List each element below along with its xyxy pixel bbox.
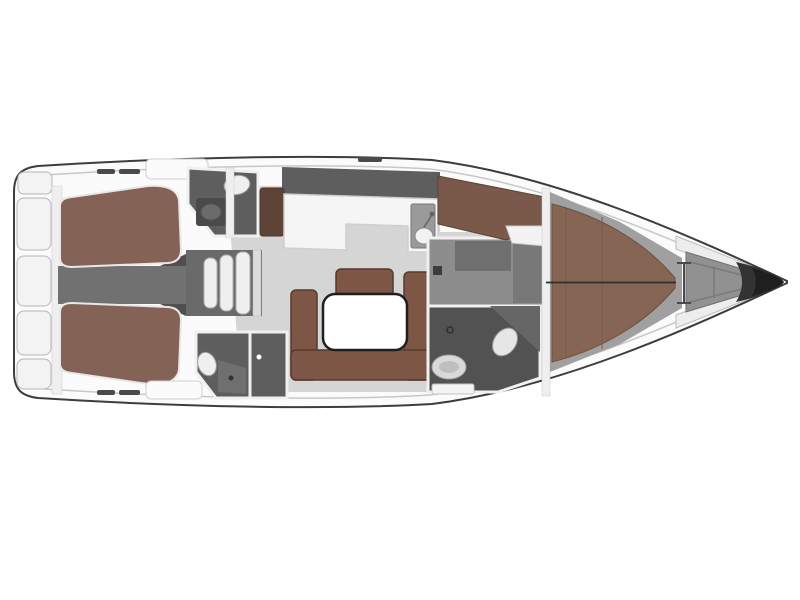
deck-hatch — [119, 169, 140, 174]
head-door — [432, 384, 474, 394]
latch — [433, 266, 442, 275]
deck-hatch — [119, 390, 140, 395]
stair-step — [236, 252, 250, 314]
forward-bulkhead — [542, 188, 550, 396]
floorplan-svg — [0, 0, 800, 600]
salon-table — [323, 294, 407, 350]
transom-seat — [17, 198, 51, 250]
deck-hatch — [97, 390, 115, 395]
door-knob — [257, 355, 262, 360]
bow-anchor-locker — [676, 236, 784, 328]
shower-drain — [229, 376, 234, 381]
head-aft-port — [188, 168, 258, 236]
deck-hatch — [97, 169, 115, 174]
sink-bowl — [439, 361, 459, 373]
engine-corridor — [58, 266, 186, 304]
stair-step — [220, 255, 233, 311]
sofa-bottom-bench — [291, 350, 435, 380]
aft-cabin-starboard-berth — [60, 303, 181, 384]
side-shelf — [506, 226, 545, 246]
stair-step — [204, 258, 217, 308]
stair-rail — [253, 250, 261, 316]
deck-hatch — [358, 157, 382, 162]
aft-cabin-port-berth — [60, 186, 181, 267]
wardrobe-locker — [513, 241, 543, 303]
transom-bench-seats — [17, 172, 62, 394]
sink-basin — [201, 204, 221, 220]
transom-seat — [17, 311, 51, 355]
head-aft-starboard — [194, 332, 287, 398]
wardrobe-forward — [428, 238, 546, 306]
wardrobe-shelf — [455, 241, 511, 271]
yacht-floorplan-image — [0, 0, 800, 600]
transom-seat — [17, 256, 51, 306]
head-wall — [226, 168, 234, 238]
coachroof-box — [146, 381, 202, 399]
transom-seat — [17, 359, 51, 389]
nav-seat — [260, 188, 284, 236]
transom-seat — [18, 172, 52, 194]
head-forward — [428, 306, 540, 394]
